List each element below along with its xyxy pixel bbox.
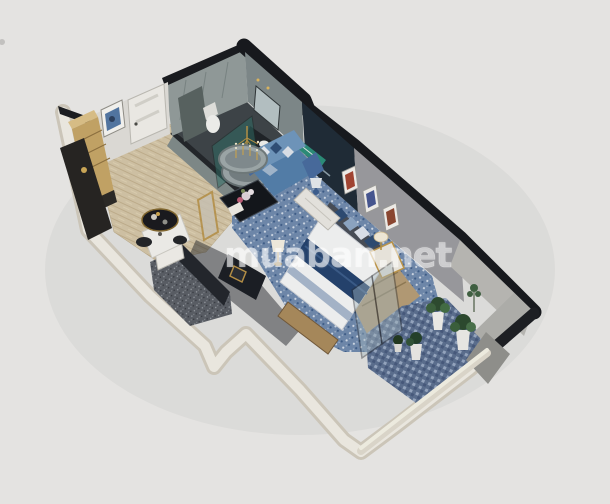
plant-foliage-1c — [440, 303, 450, 313]
flower-bouquet-3 — [248, 189, 254, 195]
floor-lamp-base — [274, 262, 282, 266]
entry-picture-art-detail — [109, 116, 115, 122]
stool-2 — [173, 236, 187, 245]
plant-pot-1 — [432, 312, 444, 330]
blue-lamp-body — [313, 189, 319, 195]
candle-tip-2 — [257, 141, 259, 143]
mirror-light-2 — [267, 87, 270, 90]
floorplan-scene — [0, 0, 610, 504]
gold-lamp-shade — [374, 232, 388, 242]
small-bush — [393, 335, 403, 345]
candelabra-flame-4 — [256, 149, 258, 151]
table-cup-1 — [151, 214, 157, 220]
stool-1 — [136, 237, 152, 247]
flower-greens — [241, 189, 245, 193]
plant-pot-3 — [410, 344, 422, 360]
small-bush-pot — [394, 344, 402, 352]
floor-lamp-shade — [271, 240, 285, 252]
tall-plant-leaf-3 — [467, 291, 473, 297]
table-cup-3 — [156, 212, 160, 216]
plant-foliage-3b — [406, 338, 414, 346]
plant-foliage-1b — [426, 303, 436, 313]
tall-plant-leaf-1 — [470, 284, 478, 292]
plant-foliage-2b — [450, 322, 460, 332]
toilet-bowl — [206, 115, 220, 133]
candelabra-flame-3 — [249, 145, 251, 147]
blue-lamp-shade — [310, 178, 322, 188]
appliance-knob — [158, 232, 162, 236]
apartment-3d-floorplan: muaban.net — [0, 0, 610, 504]
plant-foliage-2c — [466, 322, 476, 332]
tall-plant-leaf-2 — [475, 291, 481, 297]
table-cup-2 — [163, 220, 168, 225]
candelabra-flame-2 — [242, 143, 244, 145]
mirror-light-1 — [257, 79, 260, 82]
kettle — [81, 167, 87, 173]
plant-pot-2 — [456, 330, 470, 350]
round-dining-table — [142, 209, 178, 231]
entry-door-handle — [134, 122, 137, 125]
candelabra-flame-1 — [235, 147, 237, 149]
shapes-root — [0, 0, 610, 504]
